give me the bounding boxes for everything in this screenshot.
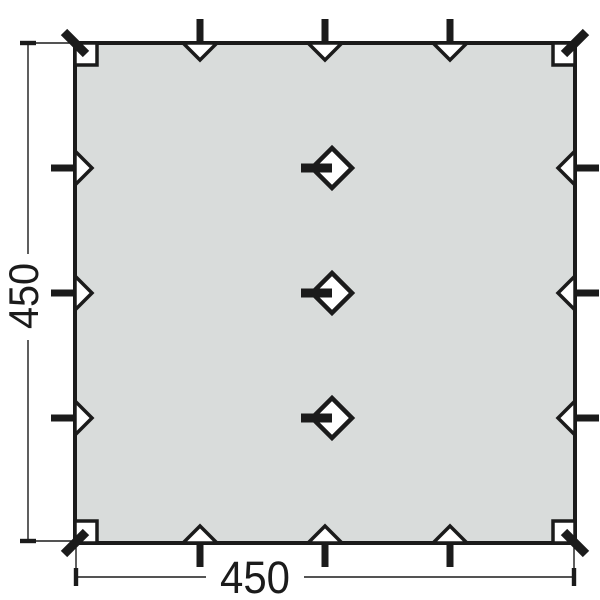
peg-marker-top-3: [447, 19, 454, 43]
peg-marker-right-2: [575, 290, 599, 297]
diagram-canvas: 450 450: [0, 0, 600, 600]
peg-marker-bottom-2: [322, 543, 329, 567]
peg-marker-right-1: [575, 165, 599, 172]
width-dimension-tick-left: [74, 568, 78, 586]
peg-marker-left-3: [51, 415, 75, 422]
peg-marker-bottom-1: [197, 543, 204, 567]
center-toggle-2-icon: [301, 289, 332, 298]
tarp-dimension-diagram: 450 450: [0, 0, 600, 600]
peg-marker-top-1: [197, 19, 204, 43]
peg-marker-bottom-3: [447, 543, 454, 567]
height-dimension-tick-bottom: [20, 539, 36, 543]
peg-marker-left-1: [51, 165, 75, 172]
peg-marker-right-3: [575, 415, 599, 422]
center-toggle-3-icon: [301, 414, 332, 423]
peg-marker-left-2: [51, 290, 75, 297]
height-dimension-tick-top: [20, 41, 36, 45]
width-dimension-label: 450: [220, 552, 290, 600]
width-dimension-tick-right: [572, 568, 576, 586]
peg-marker-top-2: [322, 19, 329, 43]
height-dimension-label: 450: [0, 263, 47, 329]
center-toggle-1-icon: [301, 164, 332, 173]
